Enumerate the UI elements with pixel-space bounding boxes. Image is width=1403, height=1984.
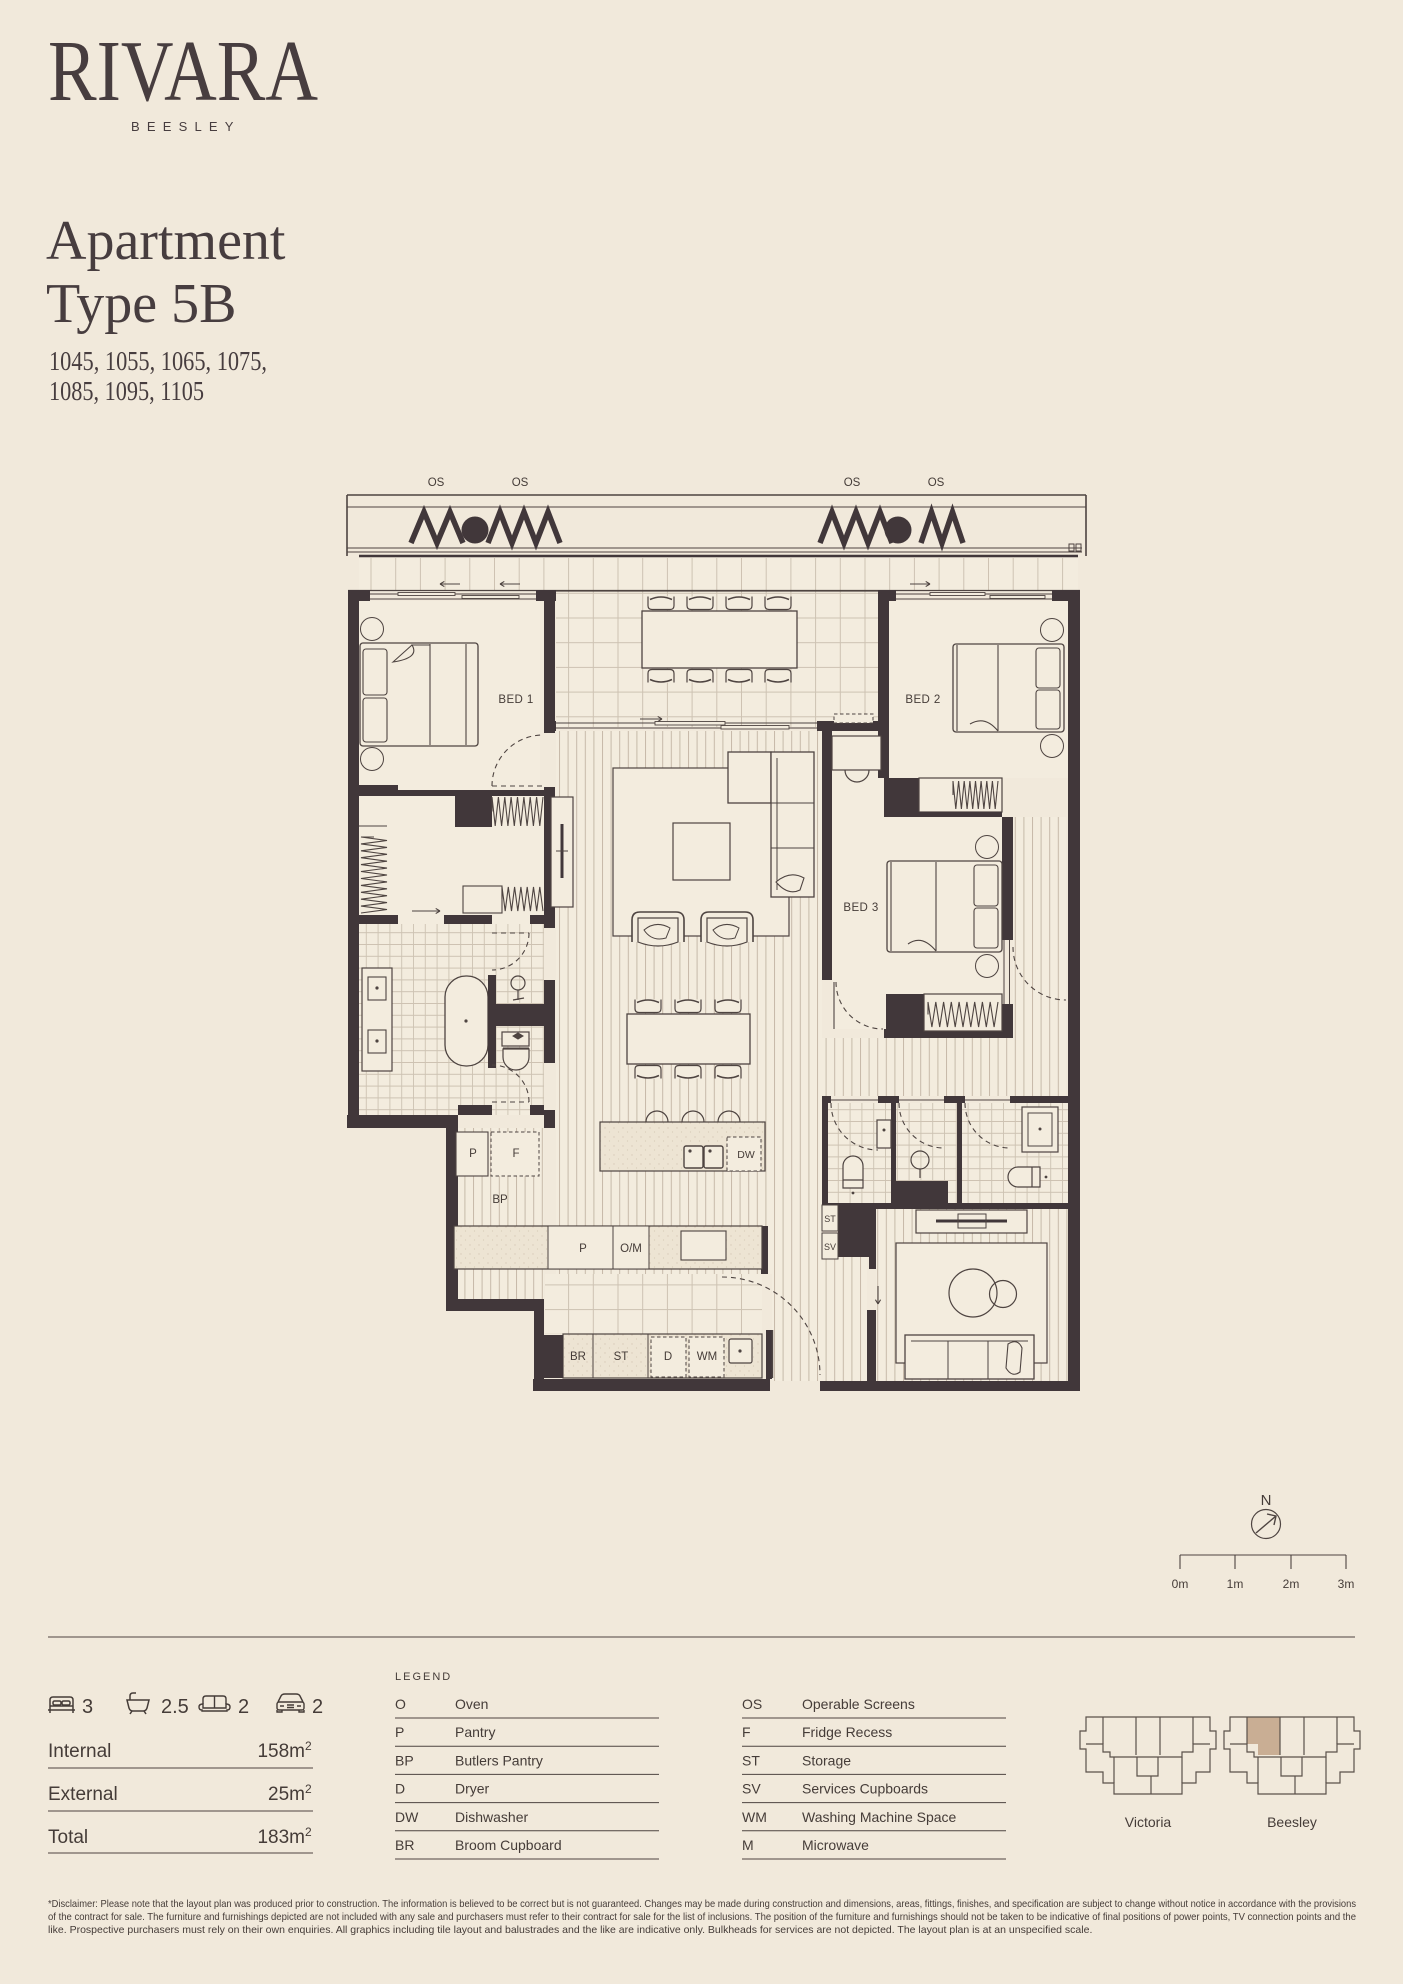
svg-text:Pantry: Pantry [455, 1724, 495, 1740]
svg-text:D: D [664, 1351, 672, 1363]
svg-text:Internal: Internal [48, 1741, 111, 1762]
svg-text:OS: OS [428, 477, 445, 489]
svg-text:External: External [48, 1784, 118, 1805]
svg-text:2: 2 [305, 1739, 312, 1753]
svg-text:2m: 2m [1283, 1577, 1300, 1591]
svg-text:WM: WM [697, 1351, 717, 1363]
svg-text:BED 1: BED 1 [498, 694, 533, 706]
svg-text:2.5: 2.5 [161, 1696, 189, 1718]
svg-text:2: 2 [312, 1696, 323, 1718]
svg-text:OS: OS [928, 477, 945, 489]
svg-text:BR: BR [395, 1837, 414, 1853]
svg-text:158m: 158m [257, 1741, 305, 1762]
svg-text:Broom Cupboard: Broom Cupboard [455, 1837, 562, 1853]
svg-text:M: M [742, 1837, 754, 1853]
svg-text:N: N [1261, 1492, 1272, 1509]
svg-text:DW: DW [395, 1809, 419, 1825]
svg-text:*Disclaimer: Please note that: *Disclaimer: Please note that the layout… [48, 1898, 1356, 1910]
svg-text:Dryer: Dryer [455, 1781, 490, 1797]
svg-text:Type 5B: Type 5B [46, 273, 237, 335]
svg-text:P: P [469, 1148, 477, 1160]
svg-text:like. Prospective purchasers m: like. Prospective purchasers must rely o… [48, 1924, 1092, 1936]
svg-text:LEGEND: LEGEND [395, 1671, 452, 1683]
svg-text:Fridge Recess: Fridge Recess [802, 1724, 892, 1740]
svg-text:F: F [742, 1724, 751, 1740]
svg-text:Beesley: Beesley [1267, 1814, 1317, 1830]
svg-text:25m: 25m [268, 1784, 305, 1805]
svg-text:OS: OS [512, 477, 529, 489]
svg-text:Victoria: Victoria [1125, 1814, 1172, 1830]
svg-text:ST: ST [824, 1214, 836, 1224]
svg-text:O/M: O/M [620, 1243, 642, 1255]
svg-text:BR: BR [570, 1351, 586, 1363]
svg-text:WM: WM [742, 1809, 767, 1825]
svg-text:OS: OS [742, 1696, 762, 1712]
svg-text:1085, 1095, 1105: 1085, 1095, 1105 [49, 376, 204, 406]
svg-text:BED 3: BED 3 [843, 902, 878, 914]
svg-text:1m: 1m [1227, 1577, 1244, 1591]
svg-text:Microwave: Microwave [802, 1837, 869, 1853]
svg-text:Washing Machine Space: Washing Machine Space [802, 1809, 957, 1825]
svg-text:RIVARA: RIVARA [48, 22, 318, 119]
svg-text:P: P [395, 1724, 404, 1740]
svg-text:OS: OS [844, 477, 861, 489]
svg-text:SV: SV [742, 1781, 761, 1797]
svg-text:2: 2 [305, 1782, 312, 1796]
svg-text:Total: Total [48, 1827, 88, 1848]
svg-text:of the contract for sale. The: of the contract for sale. The furniture … [48, 1911, 1356, 1923]
svg-text:BEESLEY: BEESLEY [131, 119, 241, 134]
svg-text:183m: 183m [257, 1827, 305, 1848]
svg-text:Apartment: Apartment [46, 210, 286, 272]
svg-text:Operable Screens: Operable Screens [802, 1696, 915, 1712]
svg-text:2: 2 [238, 1696, 249, 1718]
svg-text:BP: BP [492, 1194, 508, 1206]
svg-text:O: O [395, 1696, 406, 1712]
svg-text:ST: ST [614, 1351, 629, 1363]
svg-text:Oven: Oven [455, 1696, 488, 1712]
svg-text:Services Cupboards: Services Cupboards [802, 1781, 928, 1797]
svg-text:Dishwasher: Dishwasher [455, 1809, 528, 1825]
svg-text:P: P [579, 1243, 587, 1255]
svg-text:1045, 1055, 1065, 1075,: 1045, 1055, 1065, 1075, [49, 346, 267, 376]
svg-text:BED 2: BED 2 [905, 694, 940, 706]
svg-text:3: 3 [82, 1696, 93, 1718]
svg-text:Storage: Storage [802, 1752, 851, 1768]
svg-text:D: D [395, 1781, 405, 1797]
svg-text:ST: ST [742, 1752, 760, 1768]
svg-text:DW: DW [737, 1149, 755, 1161]
svg-text:BP: BP [395, 1752, 414, 1768]
svg-text:2: 2 [305, 1825, 312, 1839]
svg-text:3m: 3m [1338, 1577, 1355, 1591]
svg-text:SV: SV [824, 1242, 836, 1252]
svg-text:0m: 0m [1172, 1577, 1189, 1591]
svg-text:Butlers Pantry: Butlers Pantry [455, 1752, 543, 1768]
svg-text:F: F [512, 1148, 519, 1160]
